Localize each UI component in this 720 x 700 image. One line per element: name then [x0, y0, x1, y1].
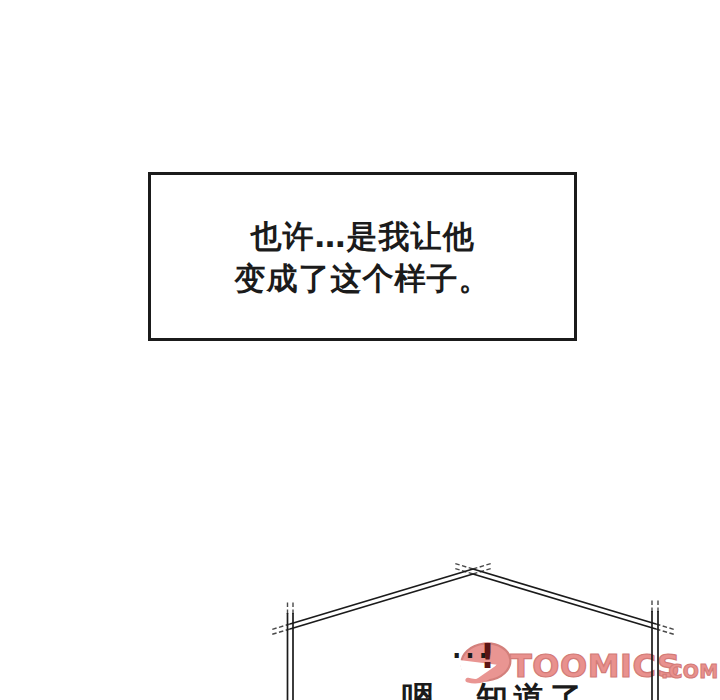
roof-left-slope-line [290, 569, 473, 629]
narration-line-2: 变成了这个样子。 [235, 257, 491, 299]
comic-page: 也许…是我让他 变成了这个样子。 TOOMICS .COM [0, 0, 720, 700]
narration-line-1: 也许…是我让他 [251, 215, 475, 257]
dialogue-line: 嗯，知道了 [402, 680, 587, 700]
toomics-brand-text: TOOMICS [510, 650, 681, 682]
dialogue-exclamation: ! [480, 640, 495, 673]
panel-border-lines [0, 0, 720, 700]
left-wall-line [288, 613, 294, 700]
narration-box: 也许…是我让他 变成了这个样子。 [148, 172, 577, 341]
toomics-domain-text: .COM [661, 662, 718, 681]
roof-right-slope-line [473, 569, 656, 629]
